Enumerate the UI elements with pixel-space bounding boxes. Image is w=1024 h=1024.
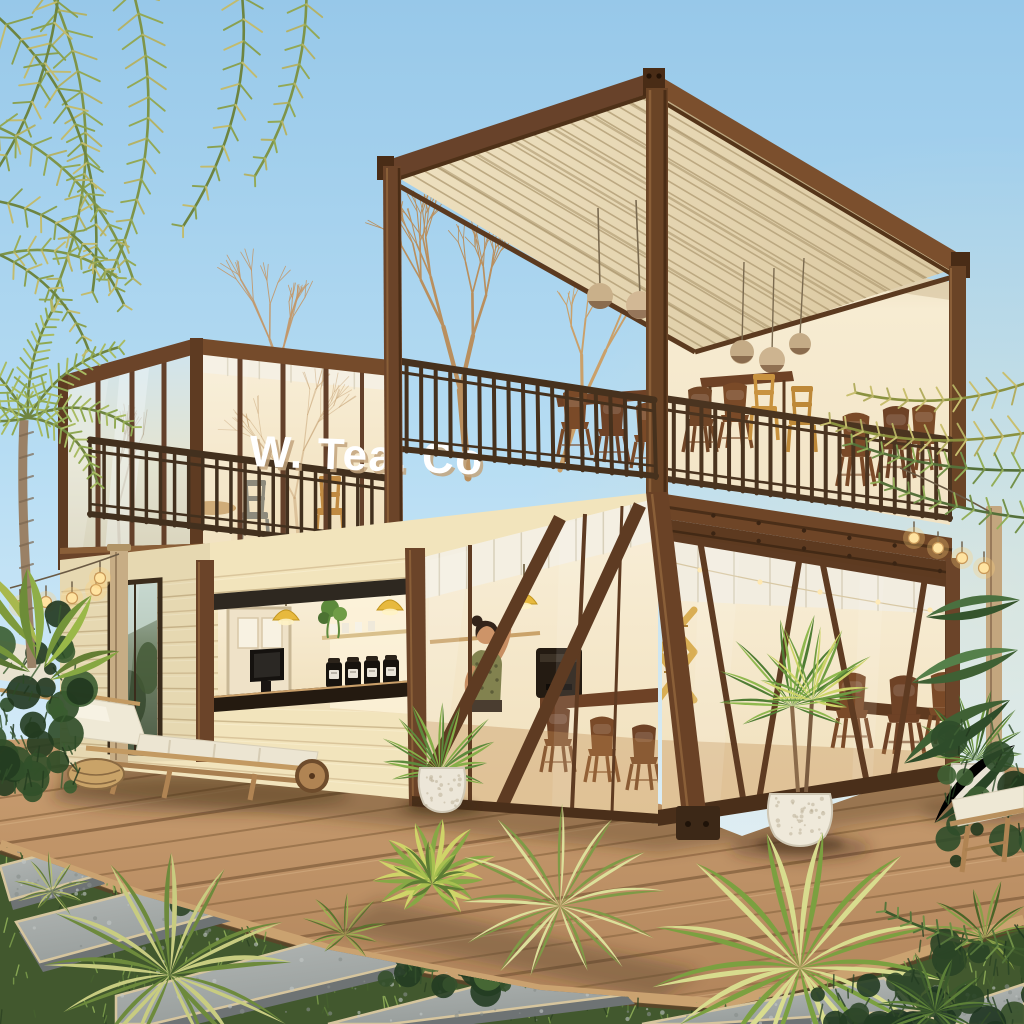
counter-window: [214, 570, 414, 714]
scene-canvas: W. Tea. Co W. Tea. Co: [0, 0, 1024, 1024]
tea-dispenser: [364, 656, 380, 686]
strut-footing: [676, 806, 720, 840]
tea-dispenser: [383, 655, 399, 685]
tea-dispenser: [345, 657, 361, 687]
tea-dispenser: [326, 658, 342, 688]
cafe-exterior-scene: W. Tea. Co W. Tea. Co: [0, 0, 1024, 1024]
